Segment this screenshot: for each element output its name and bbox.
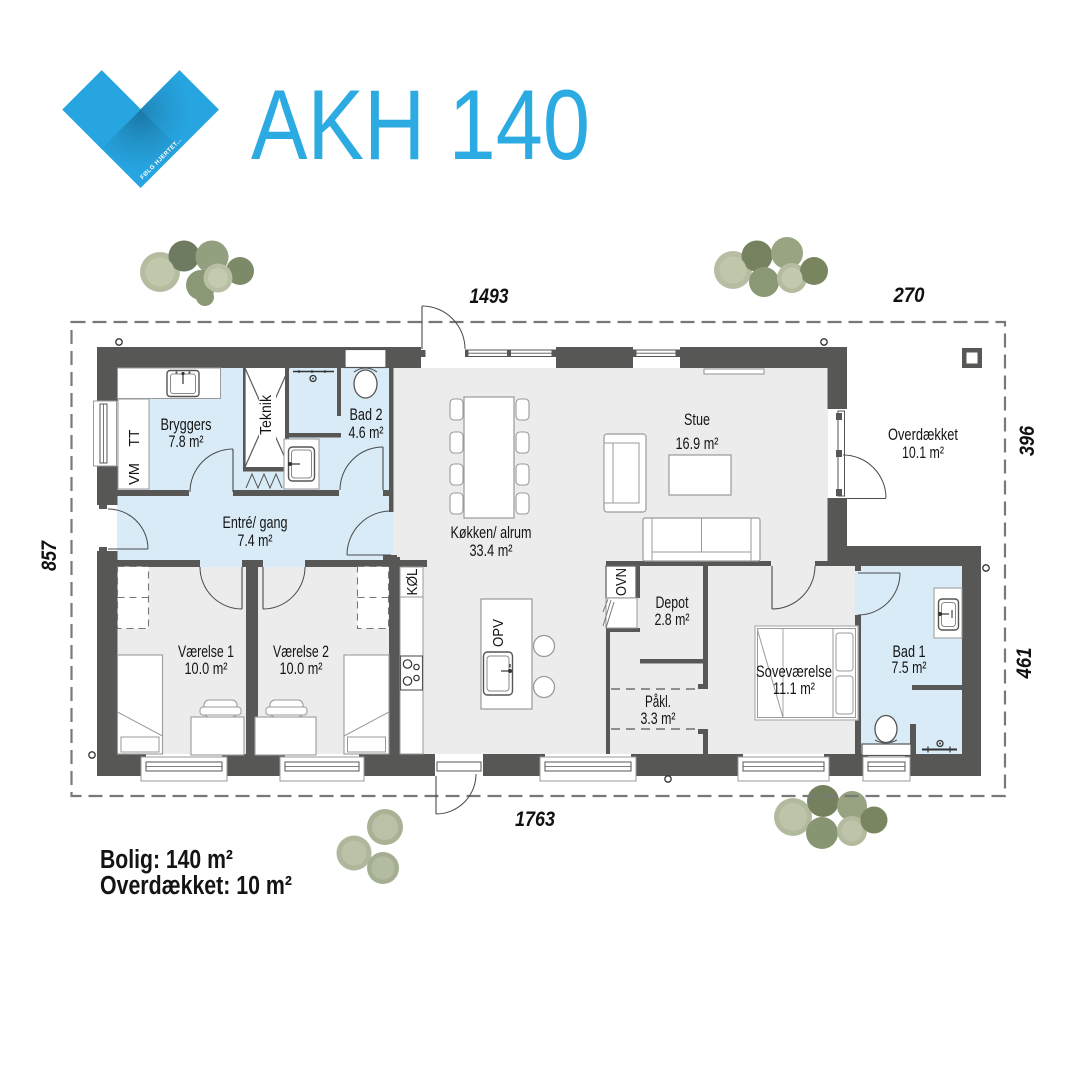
svg-text:Teknik: Teknik xyxy=(258,394,275,435)
svg-text:Entré/ gang: Entré/ gang xyxy=(223,514,288,532)
svg-text:Overdækket: 10 m²: Overdækket: 10 m² xyxy=(100,872,292,900)
svg-text:Påkl.: Påkl. xyxy=(645,693,671,711)
svg-text:10.1 m²: 10.1 m² xyxy=(902,444,944,462)
svg-text:AKH 140: AKH 140 xyxy=(251,69,590,180)
svg-text:7.4 m²: 7.4 m² xyxy=(238,532,273,550)
svg-text:1763: 1763 xyxy=(515,808,555,831)
svg-text:857: 857 xyxy=(38,540,61,571)
svg-text:Stue: Stue xyxy=(684,411,710,429)
svg-text:Bryggers: Bryggers xyxy=(161,416,212,434)
svg-text:TT: TT xyxy=(126,430,143,447)
svg-text:11.1 m²: 11.1 m² xyxy=(773,680,815,698)
svg-text:Køkken/ alrum: Køkken/ alrum xyxy=(451,524,532,542)
svg-text:Værelse 1: Værelse 1 xyxy=(178,643,234,661)
svg-text:OVN: OVN xyxy=(614,568,630,596)
svg-text:7.8 m²: 7.8 m² xyxy=(169,433,204,451)
svg-text:33.4 m²: 33.4 m² xyxy=(470,542,513,560)
svg-text:7.5 m²: 7.5 m² xyxy=(892,659,927,677)
svg-text:KØL: KØL xyxy=(405,569,421,596)
svg-text:10.0 m²: 10.0 m² xyxy=(280,660,323,678)
svg-text:461: 461 xyxy=(1013,648,1036,680)
svg-text:2.8 m²: 2.8 m² xyxy=(655,611,690,629)
svg-text:Bad 2: Bad 2 xyxy=(350,406,383,424)
svg-text:10.0 m²: 10.0 m² xyxy=(185,660,228,678)
svg-text:396: 396 xyxy=(1016,426,1039,456)
svg-text:4.6 m²: 4.6 m² xyxy=(349,424,384,442)
svg-text:OPV: OPV xyxy=(491,619,507,647)
svg-text:Soveværelse: Soveværelse xyxy=(756,663,832,681)
svg-text:3.3 m²: 3.3 m² xyxy=(641,710,676,728)
svg-text:1493: 1493 xyxy=(470,285,509,308)
svg-text:270: 270 xyxy=(893,284,925,307)
svg-text:Bolig: 140 m²: Bolig: 140 m² xyxy=(100,846,233,874)
svg-text:VM: VM xyxy=(126,463,143,485)
svg-text:Overdækket: Overdækket xyxy=(888,426,958,444)
svg-text:Værelse 2: Værelse 2 xyxy=(273,643,329,661)
svg-text:16.9 m²: 16.9 m² xyxy=(676,435,719,453)
svg-text:Depot: Depot xyxy=(656,594,689,612)
